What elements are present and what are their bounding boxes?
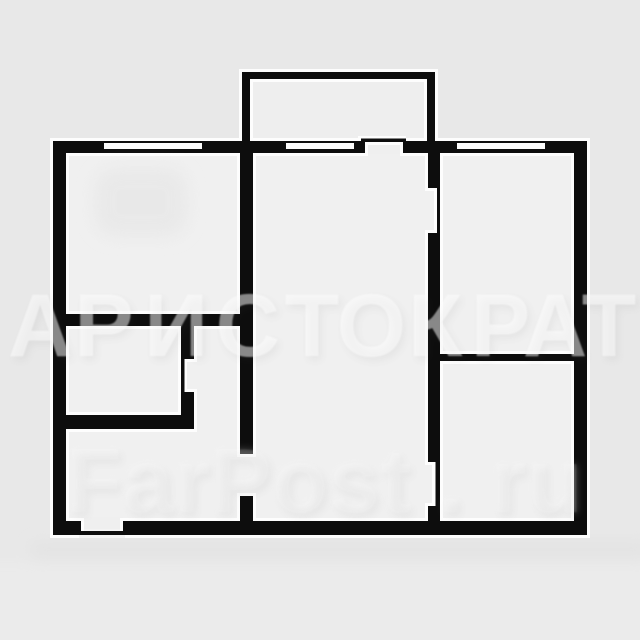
svg-text:FarPost . ru: FarPost . ru (66, 431, 584, 532)
svg-text:АРИСТОКРАТ: АРИСТОКРАТ (8, 275, 636, 375)
